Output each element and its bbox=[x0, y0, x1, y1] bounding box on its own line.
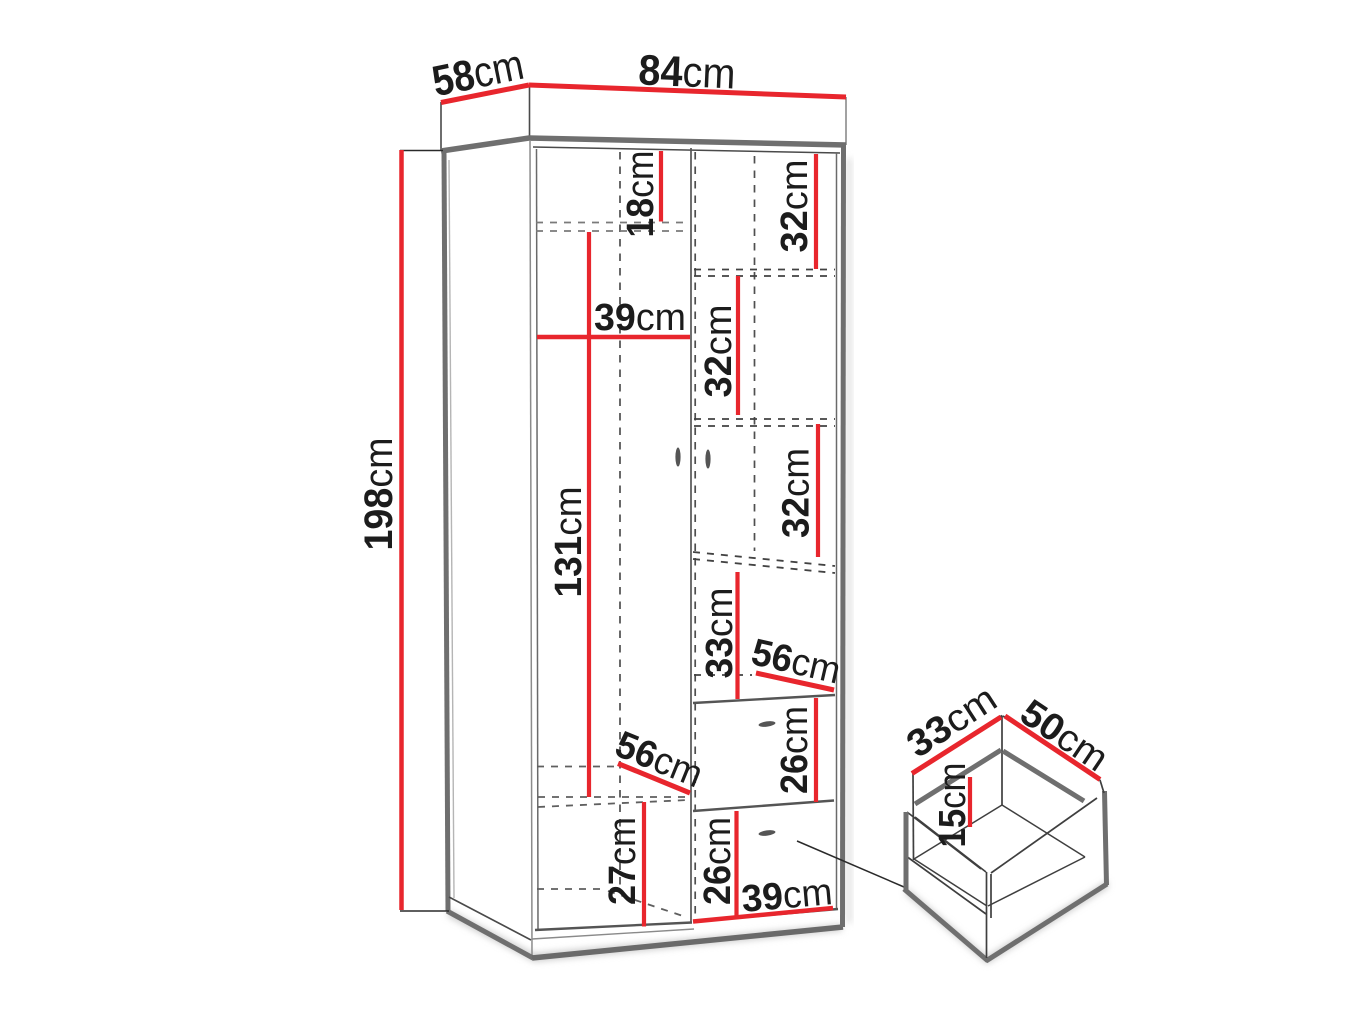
svg-text:84cm: 84cm bbox=[637, 46, 736, 98]
svg-text:32cm: 32cm bbox=[698, 305, 740, 398]
svg-text:32cm: 32cm bbox=[774, 160, 816, 253]
svg-text:33cm: 33cm bbox=[699, 588, 741, 679]
svg-text:15cm: 15cm bbox=[932, 763, 974, 848]
svg-text:198cm: 198cm bbox=[357, 438, 401, 551]
svg-text:18cm: 18cm bbox=[620, 151, 662, 238]
svg-text:131cm: 131cm bbox=[548, 487, 590, 598]
svg-text:27cm: 27cm bbox=[602, 817, 644, 905]
svg-text:26cm: 26cm bbox=[774, 706, 816, 794]
svg-text:26cm: 26cm bbox=[697, 817, 739, 905]
svg-text:39cm: 39cm bbox=[594, 297, 686, 339]
svg-text:39cm: 39cm bbox=[740, 871, 834, 921]
svg-text:32cm: 32cm bbox=[776, 448, 818, 538]
